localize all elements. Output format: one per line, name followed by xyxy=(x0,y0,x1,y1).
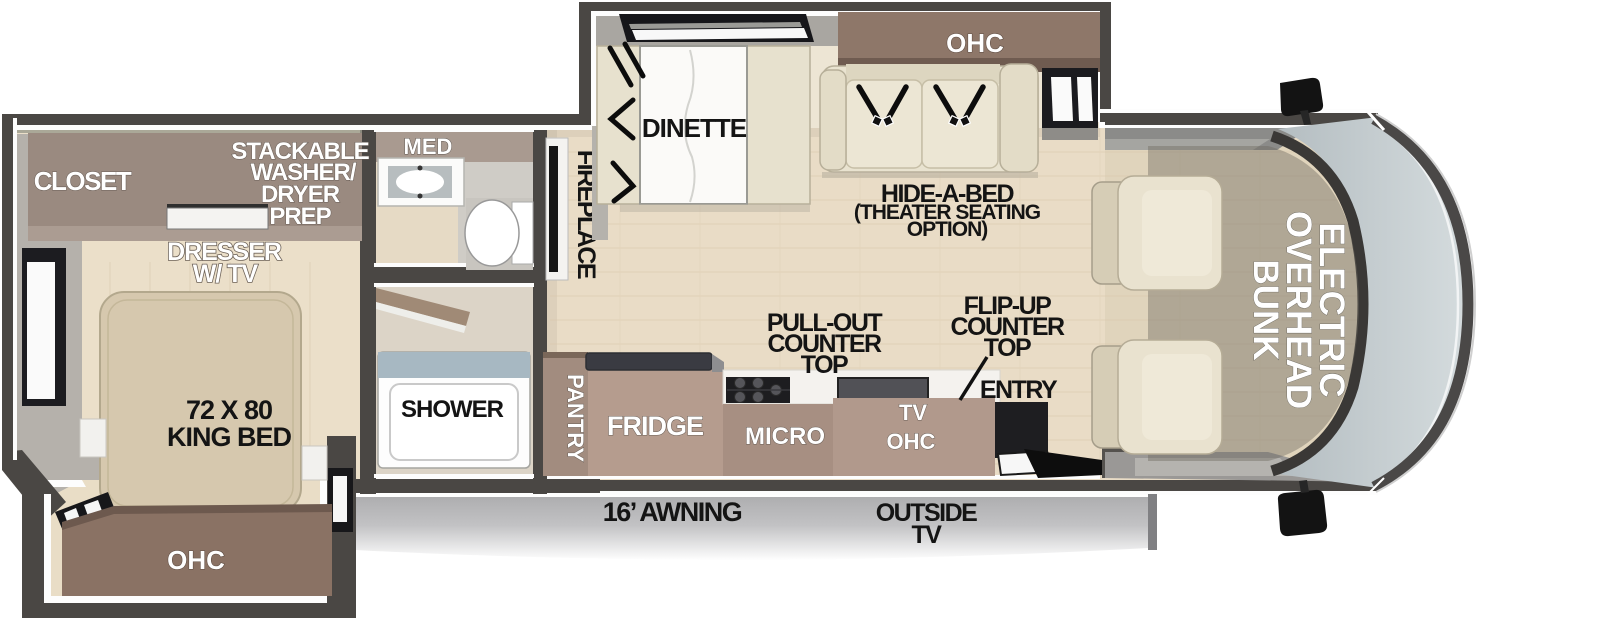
svg-text:16’ AWNING: 16’ AWNING xyxy=(603,497,742,527)
svg-text:KING BED: KING BED xyxy=(167,422,292,452)
svg-text:OHC: OHC xyxy=(887,429,936,454)
svg-text:TOP: TOP xyxy=(984,334,1031,362)
svg-text:TV: TV xyxy=(899,400,927,425)
svg-text:SHOWER: SHOWER xyxy=(401,396,504,423)
svg-text:OPTION): OPTION) xyxy=(907,218,988,241)
svg-text:CLOSET: CLOSET xyxy=(34,166,132,196)
svg-text:PREP: PREP xyxy=(269,203,331,230)
svg-text:DINETTE: DINETTE xyxy=(642,113,747,143)
svg-text:PANTRY: PANTRY xyxy=(563,374,588,462)
svg-text:TOP: TOP xyxy=(801,351,848,379)
svg-text:MED: MED xyxy=(404,134,453,159)
svg-text:FRIDGE: FRIDGE xyxy=(607,411,703,441)
svg-text:MICRO: MICRO xyxy=(745,423,825,450)
svg-text:W/ TV: W/ TV xyxy=(193,260,259,288)
svg-text:ENTRY: ENTRY xyxy=(980,376,1058,404)
svg-text:OHC: OHC xyxy=(167,545,225,575)
svg-text:TV: TV xyxy=(912,521,943,549)
svg-text:BUNK: BUNK xyxy=(1246,259,1285,360)
svg-text:OHC: OHC xyxy=(946,28,1004,58)
svg-text:72 X 80: 72 X 80 xyxy=(186,395,272,425)
